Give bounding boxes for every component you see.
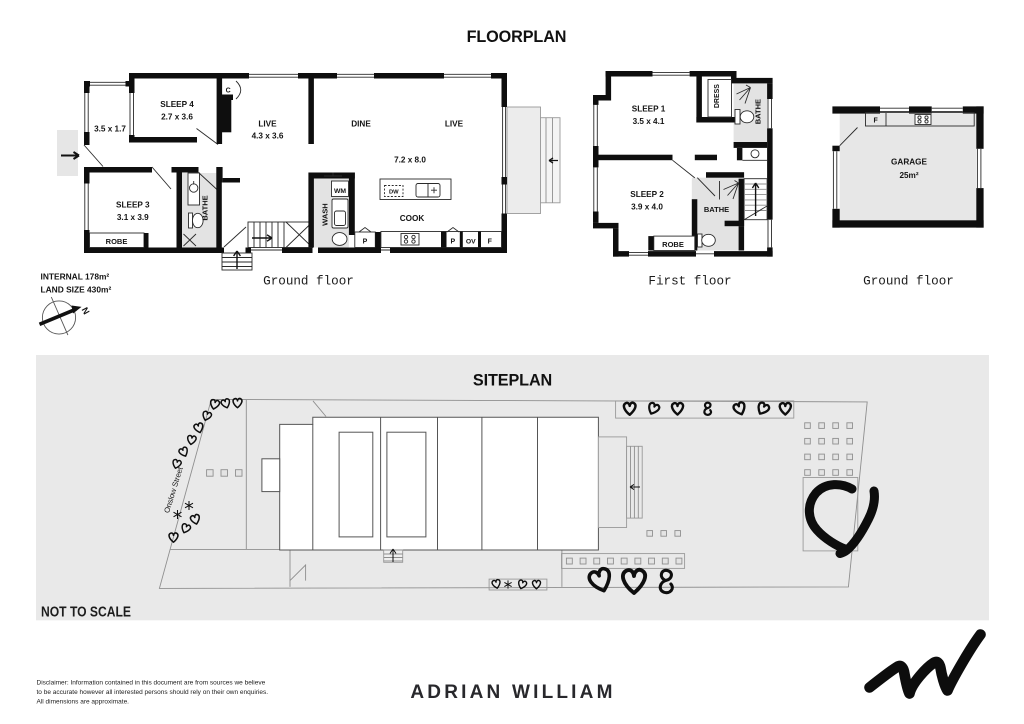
svg-text:BATHE: BATHE [704,205,729,214]
svg-text:DW: DW [389,190,399,196]
svg-text:GARAGE: GARAGE [891,158,927,167]
svg-text:LAND SIZE 430m²: LAND SIZE 430m² [41,285,112,295]
svg-text:NOT TO SCALE: NOT TO SCALE [41,605,131,621]
svg-text:WM: WM [334,188,346,195]
svg-text:LIVE: LIVE [445,120,464,129]
svg-text:Disclaimer: Information contai: Disclaimer: Information contained in thi… [37,680,266,687]
svg-text:INTERNAL 178m²: INTERNAL 178m² [41,272,110,282]
svg-text:P: P [450,239,455,246]
svg-text:COOK: COOK [400,214,425,223]
svg-text:2.7 x 3.6: 2.7 x 3.6 [161,113,193,122]
svg-text:LIVE: LIVE [258,120,277,129]
svg-text:FLOORPLAN: FLOORPLAN [467,28,567,46]
svg-text:SLEEP 3: SLEEP 3 [116,201,150,210]
svg-text:P: P [363,239,368,246]
svg-text:4.3 x 3.6: 4.3 x 3.6 [252,132,284,141]
svg-text:SITEPLAN: SITEPLAN [473,372,552,390]
svg-text:DRESS: DRESS [714,84,721,108]
svg-text:F: F [874,118,879,125]
svg-text:ADRIAN WILLIAM: ADRIAN WILLIAM [410,682,615,703]
svg-text:C: C [226,87,231,94]
svg-text:F: F [488,239,493,246]
svg-text:ROBE: ROBE [106,237,128,246]
svg-text:BATHE: BATHE [754,99,763,124]
svg-text:SLEEP 1: SLEEP 1 [632,105,666,114]
svg-text:3.5 x 4.1: 3.5 x 4.1 [633,117,665,126]
svg-text:3.9 x 4.0: 3.9 x 4.0 [631,203,663,212]
svg-text:Ground floor: Ground floor [263,275,354,289]
svg-text:All dimensions are approximate: All dimensions are approximate. [37,699,130,706]
svg-text:ROBE: ROBE [662,240,684,249]
svg-text:OV: OV [466,239,476,246]
svg-text:7.2 x 8.0: 7.2 x 8.0 [394,156,426,165]
svg-text:WASH: WASH [320,203,329,226]
svg-text:25m²: 25m² [899,171,918,180]
svg-text:First floor: First floor [648,275,731,289]
svg-text:3.1 x 3.9: 3.1 x 3.9 [117,213,149,222]
svg-text:BATHE: BATHE [201,195,210,220]
svg-text:3.5 x 1.7: 3.5 x 1.7 [94,125,126,134]
svg-text:SLEEP 2: SLEEP 2 [630,190,664,199]
svg-text:to be accurate however all int: to be accurate however all interested pe… [37,689,269,696]
svg-text:DINE: DINE [351,120,371,129]
svg-text:Ground floor: Ground floor [863,275,954,289]
svg-text:SLEEP 4: SLEEP 4 [160,100,194,109]
